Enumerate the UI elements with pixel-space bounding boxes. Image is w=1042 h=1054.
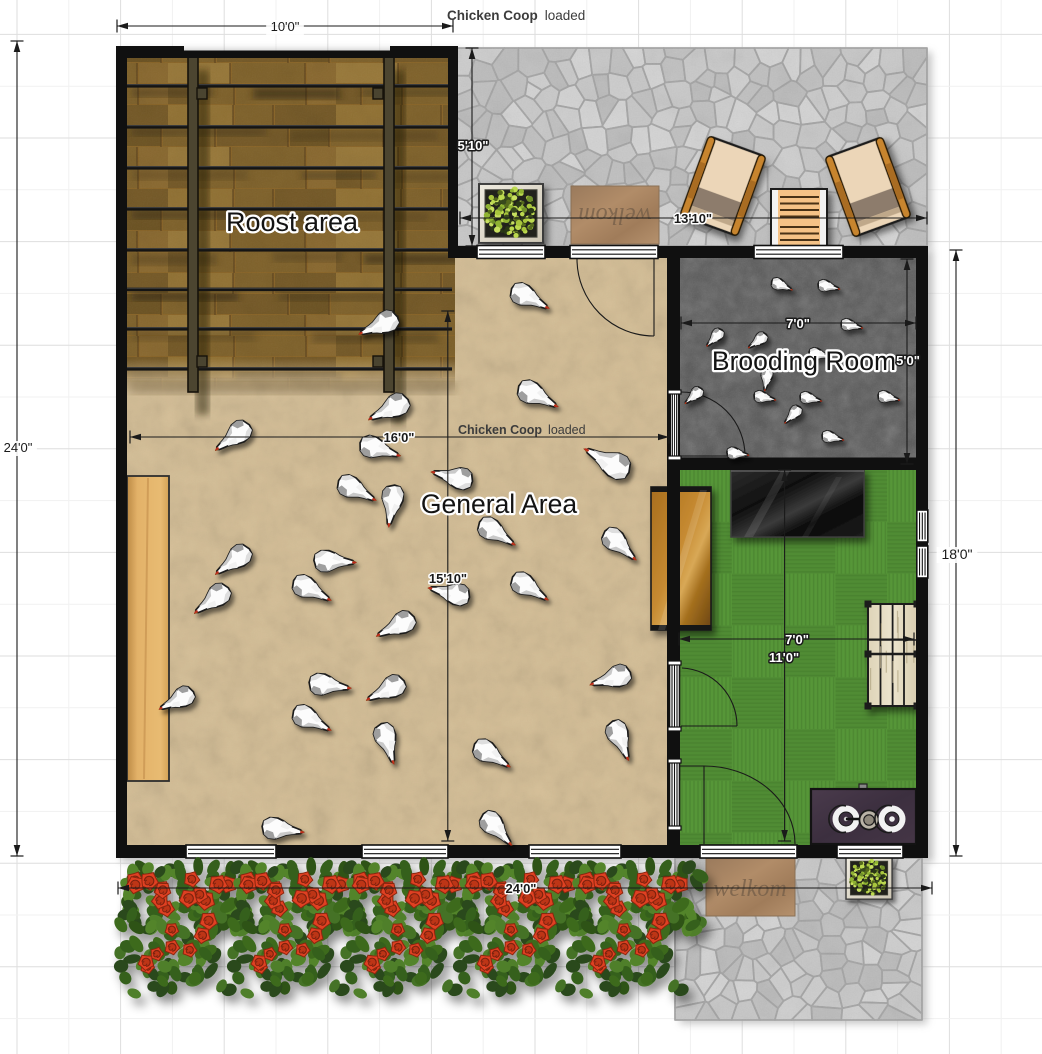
svg-text:24'0": 24'0" — [506, 881, 537, 896]
svg-text:General Area: General Area — [421, 489, 577, 519]
svg-text:24'0": 24'0" — [4, 440, 33, 455]
svg-text:11'0": 11'0" — [769, 650, 799, 665]
svg-text:Chicken Cooploaded: Chicken Cooploaded — [447, 8, 585, 23]
svg-text:5'10": 5'10" — [458, 138, 489, 153]
svg-text:13'10": 13'10" — [674, 211, 712, 226]
svg-text:5'0": 5'0" — [896, 353, 920, 368]
svg-text:16'0": 16'0" — [384, 430, 415, 445]
svg-text:7'0": 7'0" — [785, 632, 809, 647]
svg-text:18'0": 18'0" — [941, 546, 972, 562]
svg-text:Brooding Room: Brooding Room — [712, 346, 896, 376]
svg-text:15'10": 15'10" — [429, 571, 467, 586]
svg-text:Roost area: Roost area — [226, 207, 359, 237]
svg-text:7'0": 7'0" — [786, 316, 810, 331]
svg-text:welkom: welkom — [713, 876, 786, 902]
svg-text:Chicken Cooploaded: Chicken Cooploaded — [458, 423, 586, 437]
svg-text:welkom: welkom — [578, 202, 651, 228]
svg-text:10'0": 10'0" — [271, 19, 300, 34]
